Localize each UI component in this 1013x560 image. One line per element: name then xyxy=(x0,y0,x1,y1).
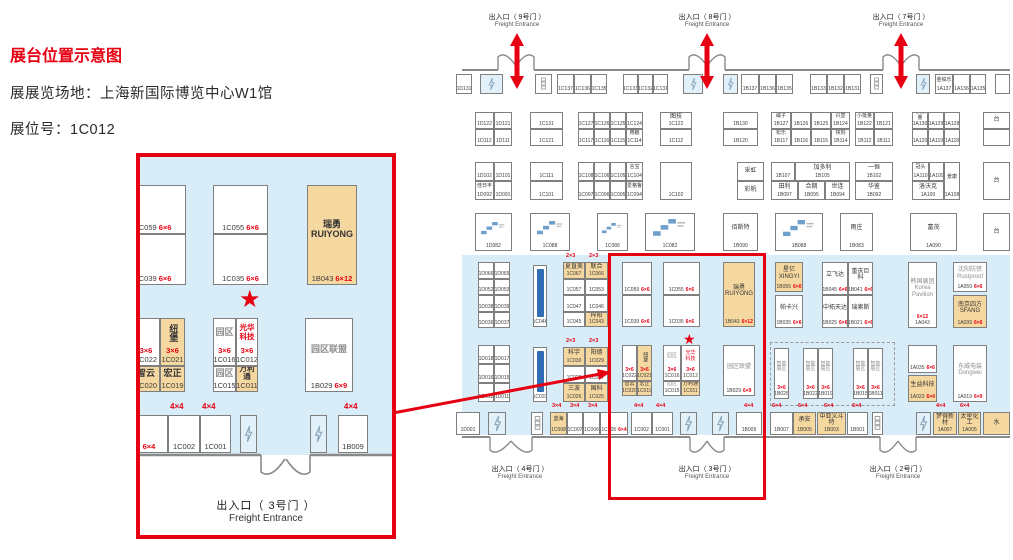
booth-1B121: 1B121 xyxy=(874,112,893,129)
booth-id: 1B124 xyxy=(833,121,847,127)
booth-1D038: 1D038 xyxy=(478,295,494,312)
booth-id: 1C006 xyxy=(584,427,599,433)
booth-label: 1A0396×6 xyxy=(954,320,986,327)
booth-id: 1A043 xyxy=(915,320,929,326)
booth-label: 1C086 xyxy=(598,243,627,250)
booth-label: 1C082 xyxy=(646,243,694,250)
booth-id: 1C122 xyxy=(669,121,684,127)
booth-name: 金铂乐 xyxy=(936,75,952,86)
booth-1A059: 沈阳防锈 Rustproof1A0596×6 xyxy=(953,262,987,292)
booth-1B111: 1B111 xyxy=(874,129,893,146)
booth-1A130: 小批量1A130 xyxy=(912,112,928,129)
booth-1C124: 1C124 xyxy=(626,112,643,129)
booth-1C104: 言宝1C104 xyxy=(626,162,643,181)
booth-1B127: 磁子1B127 xyxy=(771,112,791,129)
booth-label: 3×61B011 xyxy=(869,385,882,398)
booth-1C035: 1C0356×6 xyxy=(213,234,268,285)
booth-id: 1C136 xyxy=(575,86,590,92)
lightning-icon xyxy=(487,77,496,91)
booth-1B135: 1B135 xyxy=(776,74,793,94)
booth-label: 1B009 xyxy=(339,442,367,452)
booth-label: 1B125 xyxy=(812,121,830,128)
booth-id: 1A108 xyxy=(945,192,959,198)
booth-id: 1C137 xyxy=(558,86,573,92)
booth-1D092: 佳日丰1D092 xyxy=(475,181,494,200)
booth-id: 1C131 xyxy=(539,121,554,127)
booth-id: 1A118 xyxy=(945,138,959,144)
booth-id: 1C007 xyxy=(568,427,583,433)
booth-name: 小批量 xyxy=(856,113,873,121)
booth-id: 1C131 xyxy=(653,86,668,92)
booth-label: 1B090 xyxy=(724,243,757,250)
booth-id: 1C027 xyxy=(589,375,604,381)
entrance-label: 出入口（ 8号门 ）Freight Entrance xyxy=(679,12,736,28)
booth-1D011: 1D011 xyxy=(494,383,510,402)
booth-id: 1B015 xyxy=(853,391,867,397)
booth-id: 1B083 xyxy=(849,243,863,249)
booth-1B045: 立飞达1B0456×6 xyxy=(822,262,848,295)
booth-id: 1D091 xyxy=(496,192,511,198)
booth-label: 3×61B026 xyxy=(775,385,788,398)
booth-name: 冠头 xyxy=(913,163,928,173)
booth-name: 水 xyxy=(984,413,1009,434)
entrance-label-en: Freight Entrance xyxy=(679,22,736,28)
booth-1C086: 1C086 xyxy=(597,213,628,251)
booth-id: 1C031 xyxy=(533,394,547,400)
booth-id: 1D037 xyxy=(495,320,510,326)
booth-id: 1A059 xyxy=(958,284,972,290)
booth-label: 3×61B022 xyxy=(804,385,817,398)
booth-id: 1C001 xyxy=(204,442,226,451)
booth-label: 1A128 xyxy=(945,121,959,128)
lightning-icon xyxy=(919,415,928,432)
cef-logo xyxy=(776,214,822,243)
door-arcs xyxy=(261,455,310,474)
booth-1C015: 园区1C015 xyxy=(213,366,236,392)
booth-id: 1B003 xyxy=(824,427,838,433)
booth-label: 1C133 xyxy=(624,86,637,93)
booth-size: 6×9 xyxy=(334,381,347,390)
booth-label: 1C019 xyxy=(161,381,184,391)
booth-id: 1A109 xyxy=(929,173,943,179)
booth-id: 1C016 xyxy=(213,355,235,364)
booth-name: 沈阳防锈 Rustproof xyxy=(954,263,986,284)
booth-1B124: 兴皇1B124 xyxy=(831,112,850,129)
booth-label: 1C001 xyxy=(201,442,230,452)
booth-label: 1C101 xyxy=(531,192,562,199)
booth-label: 1B095 xyxy=(799,192,824,199)
booth-1B092: 华鉴1B092 xyxy=(855,181,893,200)
booth-1D082: 1D082 xyxy=(475,213,512,251)
booth-id: 1C059 xyxy=(136,223,157,232)
booth-1D131: 1D131 xyxy=(456,74,472,94)
booth-label: 1A135 xyxy=(971,86,985,93)
booth-1B026: 智能 展区3×61B026 xyxy=(774,348,789,399)
booth-label: 1D121 xyxy=(495,121,511,128)
booth-id: 1B055 xyxy=(777,284,791,290)
booth-id: 1C055 xyxy=(222,223,244,232)
booth-label: 1C124 xyxy=(627,121,642,128)
booth-label: 1B120 xyxy=(724,138,757,145)
size-label: 3×4 xyxy=(588,404,597,410)
booth-1B025: 中拓天达1B0256×6 xyxy=(822,295,848,328)
booth-size: 6×6 xyxy=(839,320,847,326)
booth-1C059: 1C0596×6 xyxy=(136,185,186,234)
booth-id: 1C082 xyxy=(663,243,678,249)
booth-1A109: 1A109 xyxy=(929,162,944,181)
entrance-label: 出入口（ 9号门 ）Freight Entrance xyxy=(489,12,546,28)
booth-name: 科宇 xyxy=(564,348,584,358)
booth-label: 1B131 xyxy=(845,86,860,93)
booth-name: 重庆巨科 xyxy=(849,263,872,287)
booth-label: 1A109 xyxy=(930,173,943,180)
booth-1B011: 智能 展区3×61B011 xyxy=(868,348,883,399)
booth-id: 1C112 xyxy=(669,138,683,144)
booth-label: 1B097 xyxy=(772,192,797,199)
booth-1D121: 1D121 xyxy=(494,112,512,129)
booth-1C066: 联合1C066 xyxy=(585,262,608,279)
booth-label: 1C028 xyxy=(564,375,584,382)
booth-label: 1A0356×6 xyxy=(909,365,936,372)
booth-id: 1C105 xyxy=(611,173,626,179)
booth-1C096: 1C096 xyxy=(594,181,610,200)
booth-1C031: 1C031 xyxy=(533,347,547,402)
booth-label: 1B115 xyxy=(812,138,830,145)
booth-label: 1C125 xyxy=(611,121,625,128)
booth-1D016: 1D016 xyxy=(478,364,494,383)
booth-label: 1B0356×6 xyxy=(776,320,802,327)
booth-1C116: 1C116 xyxy=(594,129,610,146)
booth-label: 1D001 xyxy=(457,427,479,434)
cef-logo xyxy=(531,214,569,243)
booth-1C022: 3×61C022 xyxy=(136,318,160,366)
booth-label: 1C006 xyxy=(584,427,599,434)
size-label: 4×4 xyxy=(936,404,945,410)
entrance-label-cn: 出入口（ 4号门 ） xyxy=(492,464,549,474)
booth-label: 1C111 xyxy=(531,173,562,180)
booth-label: 1D037 xyxy=(495,320,509,327)
booth-label: 1D053 xyxy=(495,287,509,294)
lightning-icon xyxy=(493,415,502,432)
booth-label: 1B116 xyxy=(792,138,810,145)
booth-label: 1C121 xyxy=(531,138,562,145)
booth-id: 1C117 xyxy=(579,138,593,144)
entrance-label-cn: 出入口（ 2号门 ） xyxy=(870,464,927,474)
booth-label: 1B136 xyxy=(760,86,775,93)
booth-1D012: 1D012 xyxy=(478,383,494,402)
booth-label: 1D112 xyxy=(476,138,493,145)
booth-label: 1C094 xyxy=(627,192,642,199)
booth xyxy=(916,412,931,435)
booth-id: 1C116 xyxy=(595,138,609,144)
entrance-label-cn: 出入口（ 7号门 ） xyxy=(873,12,930,22)
booth-id: 1C115 xyxy=(611,138,625,144)
booth-id: 1C114 xyxy=(627,138,641,144)
size-label: 2×3 xyxy=(566,339,575,345)
size-label: 6×4 xyxy=(852,404,861,410)
booth-size: 3×6 xyxy=(241,346,254,355)
booth-1D102: 1D102 xyxy=(475,162,494,181)
booth-id: 1D039 xyxy=(495,304,510,310)
booth-1A135: 1A135 xyxy=(970,74,986,94)
booth-size: 6×9 xyxy=(974,394,982,400)
booth-label: 1B0436×12 xyxy=(308,274,356,284)
booth-id: 1D012 xyxy=(479,394,494,400)
booth-1C012: 光华 科技3×61C012 xyxy=(236,318,258,366)
booth-size: 3×6 xyxy=(166,346,179,355)
booth-1B126: 1B126 xyxy=(791,112,811,129)
booth-label: 1D101 xyxy=(495,173,511,180)
booth-1C108: 1C108 xyxy=(578,162,594,181)
booth-1B041: 重庆巨科1B0416×6 xyxy=(848,262,873,295)
booth-label: 3×61C016 xyxy=(214,346,235,365)
booth-1C025: 国科1C025 xyxy=(585,383,608,402)
booth-id: 1C121 xyxy=(539,138,554,144)
booth xyxy=(723,74,738,94)
booth-1B043: 瑞勇 RUIYONG1B0436×12 xyxy=(307,185,357,285)
booth-id: 1B021 xyxy=(848,320,862,326)
booth-1B029: 园区联盟1B0296×9 xyxy=(305,318,353,392)
booth-id: 1C124 xyxy=(627,121,642,127)
booth-1B005: 承安1B005 xyxy=(793,412,816,435)
booth-1D065: 1D065 xyxy=(494,262,510,279)
booth-id: 1B043 xyxy=(312,274,334,283)
booth-name: 加多利 xyxy=(796,163,849,173)
booth-label: 1C011 xyxy=(237,381,257,391)
booth-id: 1C096 xyxy=(595,192,610,198)
size-label: 6×4 xyxy=(798,404,807,410)
booth-1D111: 1D111 xyxy=(494,129,512,146)
booth-1B107: 1B107 xyxy=(771,162,795,181)
booth-name: 园区 xyxy=(214,319,235,346)
booth-name: 纽堡 xyxy=(168,320,178,345)
booth-label: 1C031 xyxy=(534,394,546,401)
booth-1B122: 小批量1B122 xyxy=(855,112,874,129)
booth-size: 6×6 xyxy=(865,287,873,293)
booth-1C121: 1C121 xyxy=(530,129,563,146)
booth-label: 1C066 xyxy=(586,271,607,278)
booth: 采虹 xyxy=(737,162,764,181)
booth-label: 1B117 xyxy=(772,138,790,145)
booth-1D122: 1D122 xyxy=(475,112,494,129)
booth-name: 南京四方 SFANG xyxy=(954,296,986,320)
booth-id: 1C053 xyxy=(589,287,604,293)
booth-label: 1C029 xyxy=(586,358,607,365)
booth-size: 6×6 xyxy=(159,223,172,232)
booth-1B136: 1B136 xyxy=(759,74,776,94)
booth-label: 1B137 xyxy=(742,86,758,93)
booth-name: 图技 xyxy=(661,113,691,121)
booth xyxy=(916,74,930,94)
booth: 台 xyxy=(983,112,1010,129)
booth-label: 1C112 xyxy=(661,138,691,145)
booth-label: 1D052 xyxy=(479,287,493,294)
booth-1C053: 1C053 xyxy=(585,279,608,295)
booth-size: 6×6 xyxy=(159,274,172,283)
booth-1B130: 1B130 xyxy=(723,112,758,129)
booth-label: 1C043 xyxy=(586,319,607,326)
booth-1A100: 洛沃克1A100 xyxy=(912,181,944,200)
booth-1C047: 1C047 xyxy=(563,295,585,312)
booth-id: 1D092 xyxy=(477,192,492,198)
booth-id: 1A100 xyxy=(921,192,935,198)
booth-1C008: 蓝海1C008 xyxy=(550,412,567,435)
booth-1C001: 1C001 xyxy=(200,415,231,453)
booth-id: 1D016 xyxy=(479,375,494,381)
booth-id: 1B011 xyxy=(868,391,882,397)
booth-size: 6×4 xyxy=(926,394,934,400)
booth-id: 1C125 xyxy=(611,121,626,127)
booth-size: 6×6 xyxy=(246,274,259,283)
booth-1B114: 快刻1B114 xyxy=(831,129,850,146)
booth-name: 磁子 xyxy=(772,113,790,121)
booth-label: 1C0596×6 xyxy=(136,223,185,233)
booth-label: 1A130 xyxy=(913,121,927,128)
entrance-label-en: Freight Entrance xyxy=(489,22,546,28)
booth-name: 雨庄 xyxy=(841,214,872,243)
booth-label: 1C030 xyxy=(564,358,584,365)
booth xyxy=(872,412,883,435)
booth-id: 1A137 xyxy=(937,86,951,92)
booth-id: 1A007 xyxy=(938,427,952,433)
booth-name: 智能 展区 xyxy=(819,349,832,385)
booth-name: 智能 展区 xyxy=(775,349,788,385)
booth-name: 承安 xyxy=(794,413,815,427)
target-area-highlight-box xyxy=(608,253,766,500)
size-label: 2×3 xyxy=(589,254,598,260)
booth-id: 1C127 xyxy=(579,121,594,127)
booth-1B009: 1B009 xyxy=(338,415,368,453)
booth-id: 1D111 xyxy=(496,138,510,144)
booth-label: 1D092 xyxy=(476,192,493,199)
booth-id: 1B045 xyxy=(823,287,837,293)
booth-label: 1B107 xyxy=(772,173,794,180)
booth-id: 1D053 xyxy=(495,287,510,293)
size-label: 4×4 xyxy=(202,403,216,411)
booth xyxy=(870,74,883,94)
booth-id: 1B105 xyxy=(815,173,829,179)
booth-label: 3×61B019 xyxy=(819,385,832,398)
booth-id: 1C135 xyxy=(592,86,607,92)
booth-name: 世连 xyxy=(826,182,849,192)
cef-logo xyxy=(598,214,627,243)
booth-id: 1C045 xyxy=(567,319,582,325)
booth-label: 1B124 xyxy=(832,121,849,128)
booth-label: 1D131 xyxy=(457,86,471,93)
booth-id: 1C047 xyxy=(567,304,582,310)
booth-id: 1C039 xyxy=(136,274,157,283)
booth-1B022: 智能 展区3×61B022 xyxy=(803,348,818,399)
booth-label: 1D012 xyxy=(479,394,493,401)
booth-1C028: 1C028 xyxy=(563,366,585,383)
booth-1B003: 中亚义斗特1B003 xyxy=(817,412,846,435)
size-label: 3×4 xyxy=(570,404,579,410)
booth-label: 1C007 xyxy=(568,427,582,434)
booth-1C102: 1C102 xyxy=(660,162,692,200)
booth-1B120: 1B120 xyxy=(723,129,758,146)
booth-name: 快刻 xyxy=(832,130,849,138)
booth-label: 1C136 xyxy=(575,86,590,93)
booth-id: 1B116 xyxy=(794,138,808,144)
booth-name: 韩国展团 Korea Pavilion xyxy=(909,263,936,314)
booth-size: 6×6 xyxy=(865,320,873,326)
booth-1C135: 1C135 xyxy=(591,74,607,94)
booth-id: 1B132 xyxy=(828,86,842,92)
size-label: 6×4 xyxy=(960,404,969,410)
booth-1B019: 智能 展区3×61B019 xyxy=(818,348,833,399)
booth xyxy=(683,74,703,94)
booth-label: 1C0356×6 xyxy=(214,274,267,284)
booth-1C011: 万利通1C011 xyxy=(236,366,258,392)
service-box-icon xyxy=(540,77,547,91)
booth-name: 园区联盟 xyxy=(306,319,352,381)
booth-name: 夏直美 xyxy=(564,263,584,271)
booth-size: 6×4 xyxy=(143,442,156,451)
booth-name: 台 xyxy=(984,113,1009,128)
booth-name: 佳日丰 xyxy=(476,182,493,192)
location-star-icon: ★ xyxy=(239,288,261,312)
booth-size: 6×6 xyxy=(839,287,847,293)
booth-label: 1C027 xyxy=(586,375,607,382)
booth-1B083: 雨庄1B083 xyxy=(840,213,873,251)
booth-name: 佰斯特 xyxy=(724,214,757,243)
cef-logo xyxy=(476,214,511,243)
booth-name: 景康 xyxy=(945,163,959,192)
booth-1A090: 富茂1A090 xyxy=(910,213,957,251)
booth-id: 1C043 xyxy=(589,319,604,325)
booth-id: 1C108 xyxy=(579,173,594,179)
booth-label: 1A0196×9 xyxy=(954,394,986,401)
booth-id: 1D038 xyxy=(479,304,494,310)
booth-1A136: 1A136 xyxy=(953,74,970,94)
booth-1C131: 1C131 xyxy=(653,74,668,94)
booth-label: 1C088 xyxy=(531,243,569,250)
booth-id: 1A005 xyxy=(962,427,976,433)
booth-label: 1C008 xyxy=(551,427,566,434)
booth-id: 1B022 xyxy=(803,391,817,397)
booth-1C114: 用趣1C114 xyxy=(626,129,643,146)
booth-label: 1B0216×6 xyxy=(849,320,872,327)
booth-label: 1B005 xyxy=(794,427,815,434)
booth-id: 1C132 xyxy=(638,86,653,92)
booth-1D037: 1D037 xyxy=(494,312,510,328)
booth-id: 1B009 xyxy=(342,442,364,451)
booth-1C048: 1C048 xyxy=(533,265,547,327)
booth-1A007: 梦得新材1A007 xyxy=(933,412,957,435)
booth-id: 1B026 xyxy=(774,391,788,397)
booth-id: 1C012 xyxy=(236,355,258,364)
detail-map: 出入口（ 3号门 ） Freight Entrance 1C0596×61C03… xyxy=(136,153,396,539)
booth-label: 1A110 xyxy=(913,173,928,180)
booth-label: 1D111 xyxy=(495,138,511,145)
booth-label: 1A119 xyxy=(929,138,943,145)
booth-id: 1C057 xyxy=(567,287,582,293)
booth-1B088: 1B088 xyxy=(775,213,823,251)
cef-logo xyxy=(646,214,694,243)
booth-id: 1C022 xyxy=(136,355,157,364)
booth-name: 台 xyxy=(984,163,1009,199)
booth-id: 1D052 xyxy=(479,287,494,293)
booth xyxy=(480,74,503,94)
booth-label: 1D016 xyxy=(479,375,493,382)
booth-id: 1D102 xyxy=(477,173,492,179)
booth-label: 1B127 xyxy=(772,121,790,128)
booth-label: 1A120 xyxy=(913,138,927,145)
booth-1C105: 1C105 xyxy=(610,162,626,181)
booth-id: 1D018 xyxy=(479,356,494,362)
booth-name: 宏正 xyxy=(161,367,184,381)
booth-1C117: 1C117 xyxy=(578,129,594,146)
